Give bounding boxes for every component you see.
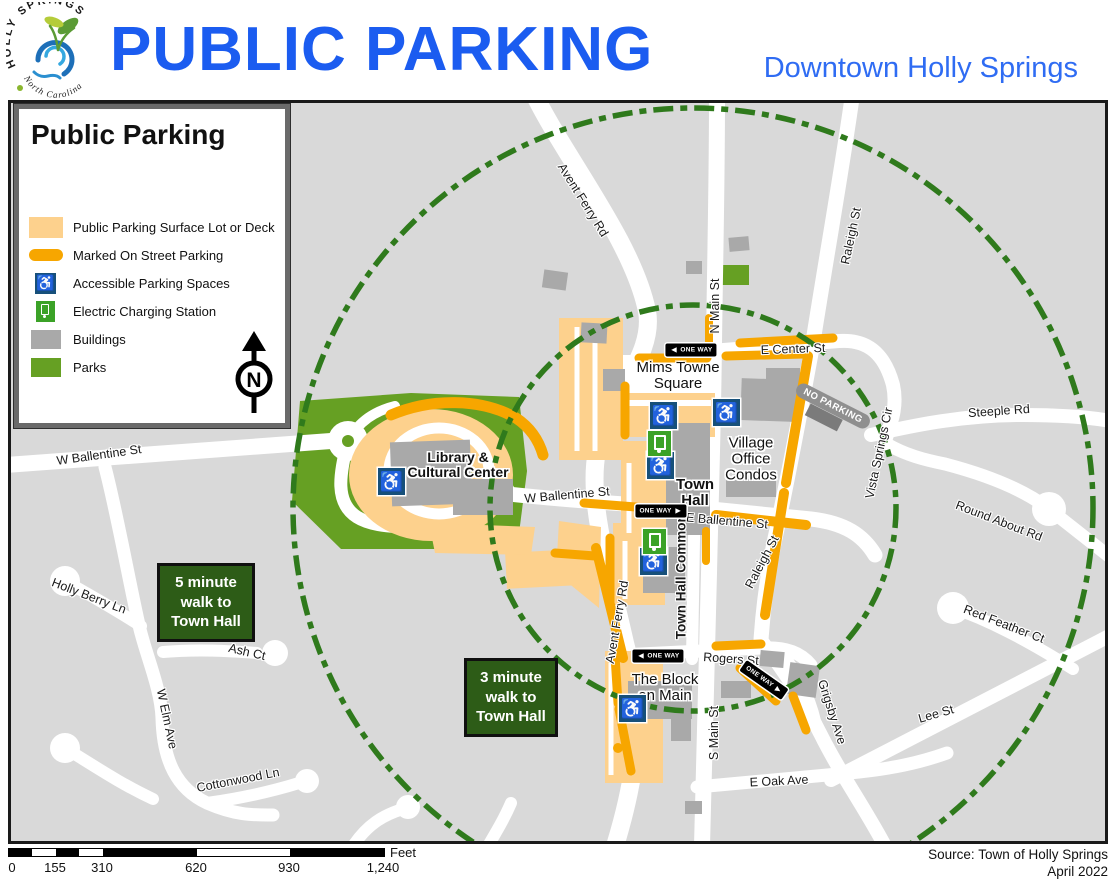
legend-item-label: Parks xyxy=(73,360,106,375)
one-way-sign: ◄ ONE WAY xyxy=(632,650,683,663)
arrow-right-icon: ► xyxy=(772,684,784,696)
legend-item-surface-lot: Public Parking Surface Lot or Deck xyxy=(29,215,275,239)
legend-item-label: Accessible Parking Spaces xyxy=(73,276,230,291)
legend-panel: Public Parking Public Parking Surface Lo… xyxy=(14,104,290,428)
page-title: PUBLIC PARKING xyxy=(110,14,653,85)
one-way-text: ONE WAY xyxy=(639,508,671,515)
street-label: E Center St xyxy=(760,341,825,357)
scale-bar-segments xyxy=(8,848,385,857)
accessible-parking-icon: ♿ xyxy=(619,695,646,722)
arrow-right-icon: ► xyxy=(674,507,683,516)
one-way-sign: ONE WAY ► xyxy=(635,505,686,518)
place-label-library-cultural-center: Library & Cultural Center xyxy=(407,450,508,480)
ev-charging-icon xyxy=(643,529,666,554)
logo-dot xyxy=(17,85,23,91)
building-swatch xyxy=(31,330,61,349)
north-arrow-icon: N xyxy=(231,331,277,419)
legend-title: Public Parking xyxy=(31,119,226,151)
scale-tick: 1,240 xyxy=(367,860,400,875)
legend-item-label: Buildings xyxy=(73,332,126,347)
legend-item-ev-charging: Electric Charging Station xyxy=(29,299,216,323)
scale-tick: 310 xyxy=(91,860,113,875)
place-label-village-office-condos: Village Office Condos xyxy=(725,436,777,485)
page-subtitle: Downtown Holly Springs xyxy=(764,52,1078,85)
legend-item-parks: Parks xyxy=(29,355,106,379)
north-letter: N xyxy=(246,369,261,392)
ev-charging-icon xyxy=(648,431,671,456)
date-text: April 2022 xyxy=(928,864,1108,879)
badge-3-minute-walk: 3 minute walk to Town Hall xyxy=(464,658,558,737)
surface-lot-swatch xyxy=(29,217,63,238)
holly-springs-logo: HOLLY SPRINGS North Carolina xyxy=(6,2,104,100)
ev-pump-glyph xyxy=(649,533,661,548)
map-credits: Source: Town of Holly Springs April 2022 xyxy=(928,847,1108,879)
arrow-left-icon: ◄ xyxy=(669,346,678,355)
park-swatch xyxy=(31,358,61,377)
street-label: N Main St xyxy=(708,279,722,334)
scale-unit-label: Feet xyxy=(390,845,416,860)
street-parking-swatch xyxy=(29,249,63,261)
accessible-parking-icon: ♿ xyxy=(713,399,740,426)
accessible-parking-icon: ♿ xyxy=(35,273,56,294)
ev-pump-glyph xyxy=(41,304,49,315)
ev-dot-glyph xyxy=(657,449,661,453)
ev-dot-glyph xyxy=(652,547,656,551)
accessible-parking-icon: ♿ xyxy=(378,468,405,495)
accessible-parking-icon: ♿ xyxy=(650,402,677,429)
source-text: Source: Town of Holly Springs xyxy=(928,847,1108,864)
public-parking-map-page: HOLLY SPRINGS North Carolina PUBLIC PARK… xyxy=(0,0,1118,879)
legend-item-street-parking: Marked On Street Parking xyxy=(29,243,223,267)
legend-item-label: Electric Charging Station xyxy=(73,304,216,319)
accessible-parking-icon: ♿ xyxy=(647,452,674,479)
scale-tick: 620 xyxy=(185,860,207,875)
scale-bar: 0 155 310 620 930 1,240 Feet xyxy=(8,848,468,878)
arrow-left-icon: ◄ xyxy=(636,652,645,661)
legend-item-accessible: ♿ Accessible Parking Spaces xyxy=(29,271,230,295)
header: HOLLY SPRINGS North Carolina PUBLIC PARK… xyxy=(0,0,1118,100)
legend-item-label: Public Parking Surface Lot or Deck xyxy=(73,220,275,235)
ev-dot-glyph xyxy=(43,315,46,318)
legend-item-label: Marked On Street Parking xyxy=(73,248,223,263)
legend-item-buildings: Buildings xyxy=(29,327,126,351)
street-label: S Main St xyxy=(707,706,721,760)
scale-tick: 0 xyxy=(8,860,15,875)
ev-charging-icon xyxy=(36,301,55,322)
one-way-text: ONE WAY xyxy=(680,347,712,354)
scale-tick: 930 xyxy=(278,860,300,875)
badge-5-minute-walk: 5 minute walk to Town Hall xyxy=(157,563,255,642)
scale-tick: 155 xyxy=(44,860,66,875)
one-way-sign: ◄ ONE WAY xyxy=(665,344,716,357)
ev-pump-glyph xyxy=(654,435,666,450)
street-label: Town Hall Commons xyxy=(674,507,689,640)
one-way-text: ONE WAY xyxy=(647,653,679,660)
place-label-mims-towne-square: Mims Towne Square xyxy=(636,360,719,392)
